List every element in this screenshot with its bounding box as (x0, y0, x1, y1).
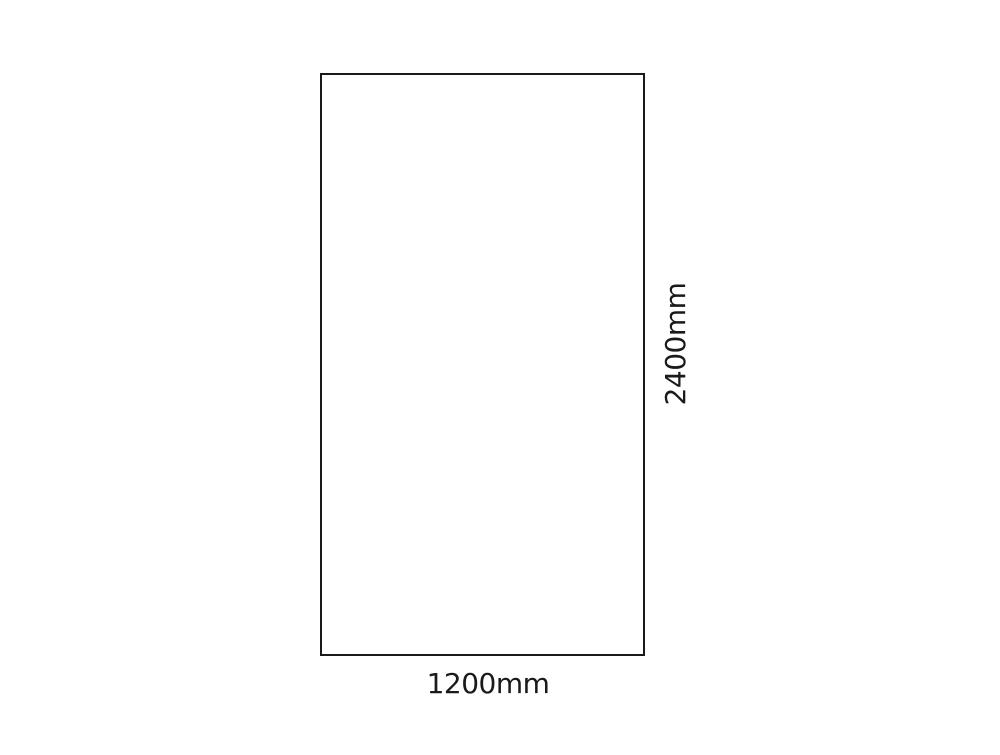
panel-rectangle (320, 73, 645, 656)
diagram-canvas: 2400mm 1200mm (0, 0, 1000, 755)
width-dimension-label: 1200mm (427, 670, 550, 698)
height-dimension-label: 2400mm (662, 283, 690, 406)
